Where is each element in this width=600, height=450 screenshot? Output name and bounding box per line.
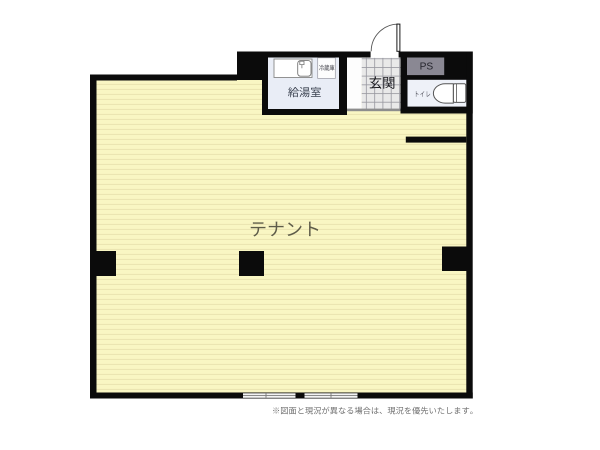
svg-text:PS: PS xyxy=(420,61,434,72)
